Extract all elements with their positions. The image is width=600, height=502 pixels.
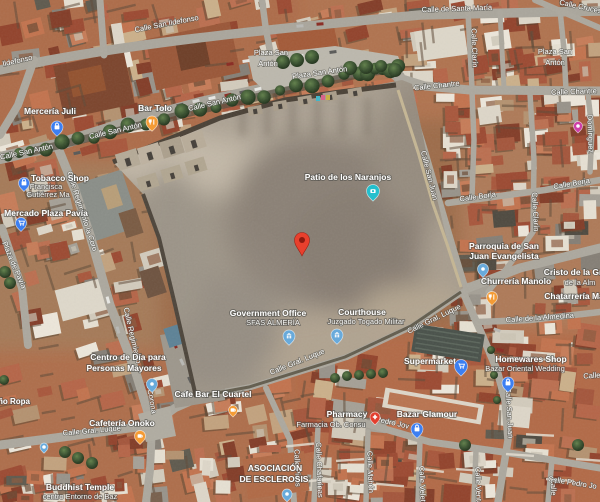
svg-text:Patio de los Naranjos: Patio de los Naranjos: [305, 172, 392, 182]
svg-text:Bazar Glamour: Bazar Glamour: [397, 409, 458, 419]
svg-text:Parroquia de San: Parroquia de San: [469, 241, 539, 251]
svg-text:Farmacia Ob. Consu: Farmacia Ob. Consu: [296, 420, 365, 429]
svg-text:Mercado Plaza Pavía: Mercado Plaza Pavía: [4, 208, 88, 218]
svg-text:Plaza San: Plaza San: [538, 47, 572, 56]
svg-text:Cafetería Onoko: Cafetería Onoko: [89, 418, 155, 428]
svg-text:Churrería Manolo: Churrería Manolo: [481, 276, 551, 286]
svg-text:Buddhist Temple: Buddhist Temple: [46, 482, 115, 492]
svg-text:Courthouse: Courthouse: [338, 307, 386, 317]
svg-text:Calle: Calle: [549, 478, 559, 495]
svg-text:Juzgado Togado Militar: Juzgado Togado Militar: [328, 317, 405, 326]
svg-text:Gutiérrez Ma: Gutiérrez Ma: [26, 190, 70, 199]
svg-text:Cristo de la Gran: Cristo de la Gran: [544, 267, 600, 277]
svg-text:Calle: Calle: [583, 370, 600, 380]
svg-text:Domínguez: Domínguez: [585, 115, 595, 154]
svg-text:Personas Mayores: Personas Mayores: [86, 363, 161, 373]
svg-text:Homewares Shop: Homewares Shop: [495, 354, 566, 364]
svg-text:Pharmacy: Pharmacy: [327, 409, 368, 419]
svg-text:Antón: Antón: [258, 59, 278, 68]
svg-text:Calle Veleta: Calle Veleta: [417, 466, 427, 502]
svg-text:de la Alm: de la Alm: [565, 278, 596, 287]
svg-text:Calle Clarín: Calle Clarín: [469, 28, 479, 67]
svg-text:Bar Tolo: Bar Tolo: [138, 103, 172, 113]
svg-text:ASOCIACIÓN: ASOCIACIÓN: [248, 462, 302, 473]
svg-text:DE ESCLEROSIS: DE ESCLEROSIS: [240, 474, 309, 484]
svg-text:Plaza San: Plaza San: [254, 48, 288, 57]
svg-text:Juan Evangelista: Juan Evangelista: [469, 251, 539, 261]
svg-text:Antón: Antón: [545, 58, 565, 67]
svg-text:ño Ropa: ño Ropa: [0, 397, 31, 406]
svg-text:Calle Ventas: Calle Ventas: [473, 467, 483, 502]
svg-text:Cafe Bar El Cuartel: Cafe Bar El Cuartel: [175, 389, 252, 399]
svg-text:centro Entorno de Baz: centro Entorno de Baz: [43, 492, 118, 501]
svg-text:Supermarket: Supermarket: [404, 356, 456, 366]
svg-text:Calle Chantre: Calle Chantre: [551, 86, 597, 97]
svg-text:SFAS ALMERÍA: SFAS ALMERÍA: [246, 318, 300, 327]
svg-text:Chatarrería Manolo: Chatarrería Manolo: [544, 291, 600, 301]
svg-text:Mercería Juli: Mercería Juli: [24, 106, 76, 116]
svg-text:Government Office: Government Office: [230, 308, 307, 318]
svg-text:Calle Mahón: Calle Mahón: [365, 451, 375, 493]
svg-text:Bazar Oriental Wedding: Bazar Oriental Wedding: [485, 364, 565, 373]
svg-text:Centro de Día para: Centro de Día para: [90, 352, 166, 362]
